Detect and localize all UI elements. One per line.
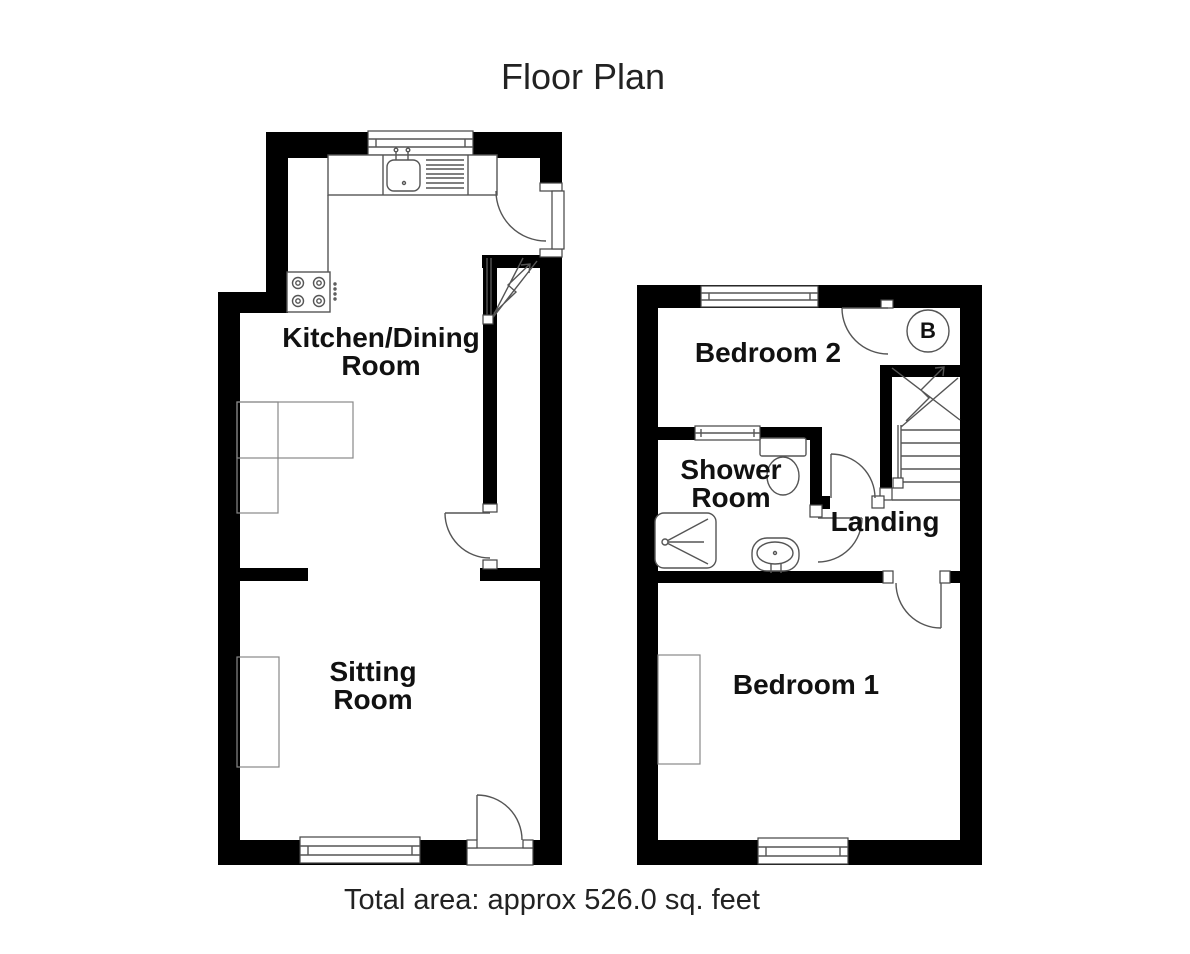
bedroom1-label: Bedroom 1 xyxy=(733,671,879,699)
page-title: Floor Plan xyxy=(501,56,665,98)
window-frame xyxy=(368,131,473,155)
window-frame xyxy=(758,838,848,864)
first-floor-walls xyxy=(637,285,982,865)
shower-room-label: Shower Room xyxy=(680,456,781,512)
label-line: Room xyxy=(680,484,781,512)
door-jamb xyxy=(483,504,497,512)
shower-tray xyxy=(655,513,716,568)
bedroom1-window xyxy=(758,838,848,864)
bedroom2-window xyxy=(701,286,818,307)
hob-control-dot xyxy=(334,288,336,290)
boiler-cupboard-door-arc xyxy=(842,308,888,354)
label-line: Shower xyxy=(680,456,781,484)
label-line: Room xyxy=(282,352,480,380)
inner-door-arc xyxy=(445,513,490,558)
stairs-first xyxy=(892,367,960,500)
door-jamb xyxy=(467,840,477,848)
door-recess xyxy=(467,848,533,865)
kitchen-window xyxy=(368,131,473,155)
landing-label: Landing xyxy=(831,508,940,536)
shower-room-window xyxy=(695,426,760,440)
window-frame xyxy=(701,286,818,307)
ground-floor-plan xyxy=(218,131,564,865)
bedroom1-door-arc xyxy=(896,583,941,628)
stair-newel xyxy=(893,478,903,488)
hob xyxy=(287,272,336,312)
bedroom2-label: Bedroom 2 xyxy=(695,339,841,367)
hob-control-dot xyxy=(334,283,336,285)
stair-newel xyxy=(483,315,493,324)
door-jamb xyxy=(881,300,893,308)
door-jamb xyxy=(523,840,533,848)
shower-drain xyxy=(662,539,668,545)
exterior-wall xyxy=(218,132,562,865)
window-frame xyxy=(300,837,420,863)
label-line: Room xyxy=(329,686,416,714)
sofa xyxy=(237,657,279,767)
kitchen-dining-room-label: Kitchen/Dining Room xyxy=(282,324,480,380)
sitting-room-window xyxy=(300,837,420,863)
ground-floor-walls xyxy=(218,132,562,865)
sitting-room-label: Sitting Room xyxy=(329,658,416,714)
sitting-room-door-arc xyxy=(477,795,522,840)
boiler-label: B xyxy=(920,318,936,344)
bed xyxy=(658,655,700,764)
floor-plan-page: Floor Plan Kitchen/Dining Room Sitting R… xyxy=(0,0,1190,954)
door-jamb xyxy=(810,505,822,517)
table xyxy=(237,402,353,458)
basin xyxy=(752,538,799,573)
door-jamb xyxy=(540,249,562,257)
label-line: Kitchen/Dining xyxy=(282,324,480,352)
total-area-text: Total area: approx 526.0 sq. feet xyxy=(344,884,760,917)
door-jamb xyxy=(883,571,893,583)
door-jamb xyxy=(940,571,950,583)
entrance-door-leaf xyxy=(552,191,564,249)
entrance-door-arc xyxy=(496,191,546,241)
door-jamb xyxy=(483,560,497,569)
hob-control-dot xyxy=(334,298,336,300)
sink-bowl xyxy=(387,160,420,191)
hob-control-dot xyxy=(334,293,336,295)
label-line: Sitting xyxy=(329,658,416,686)
first-floor-plan xyxy=(637,285,982,865)
dining-furniture xyxy=(237,402,353,513)
hob-top xyxy=(287,272,330,312)
door-jamb xyxy=(540,183,562,191)
floor-plan-drawing xyxy=(0,0,1190,954)
bedroom2-door-arc xyxy=(831,454,875,498)
